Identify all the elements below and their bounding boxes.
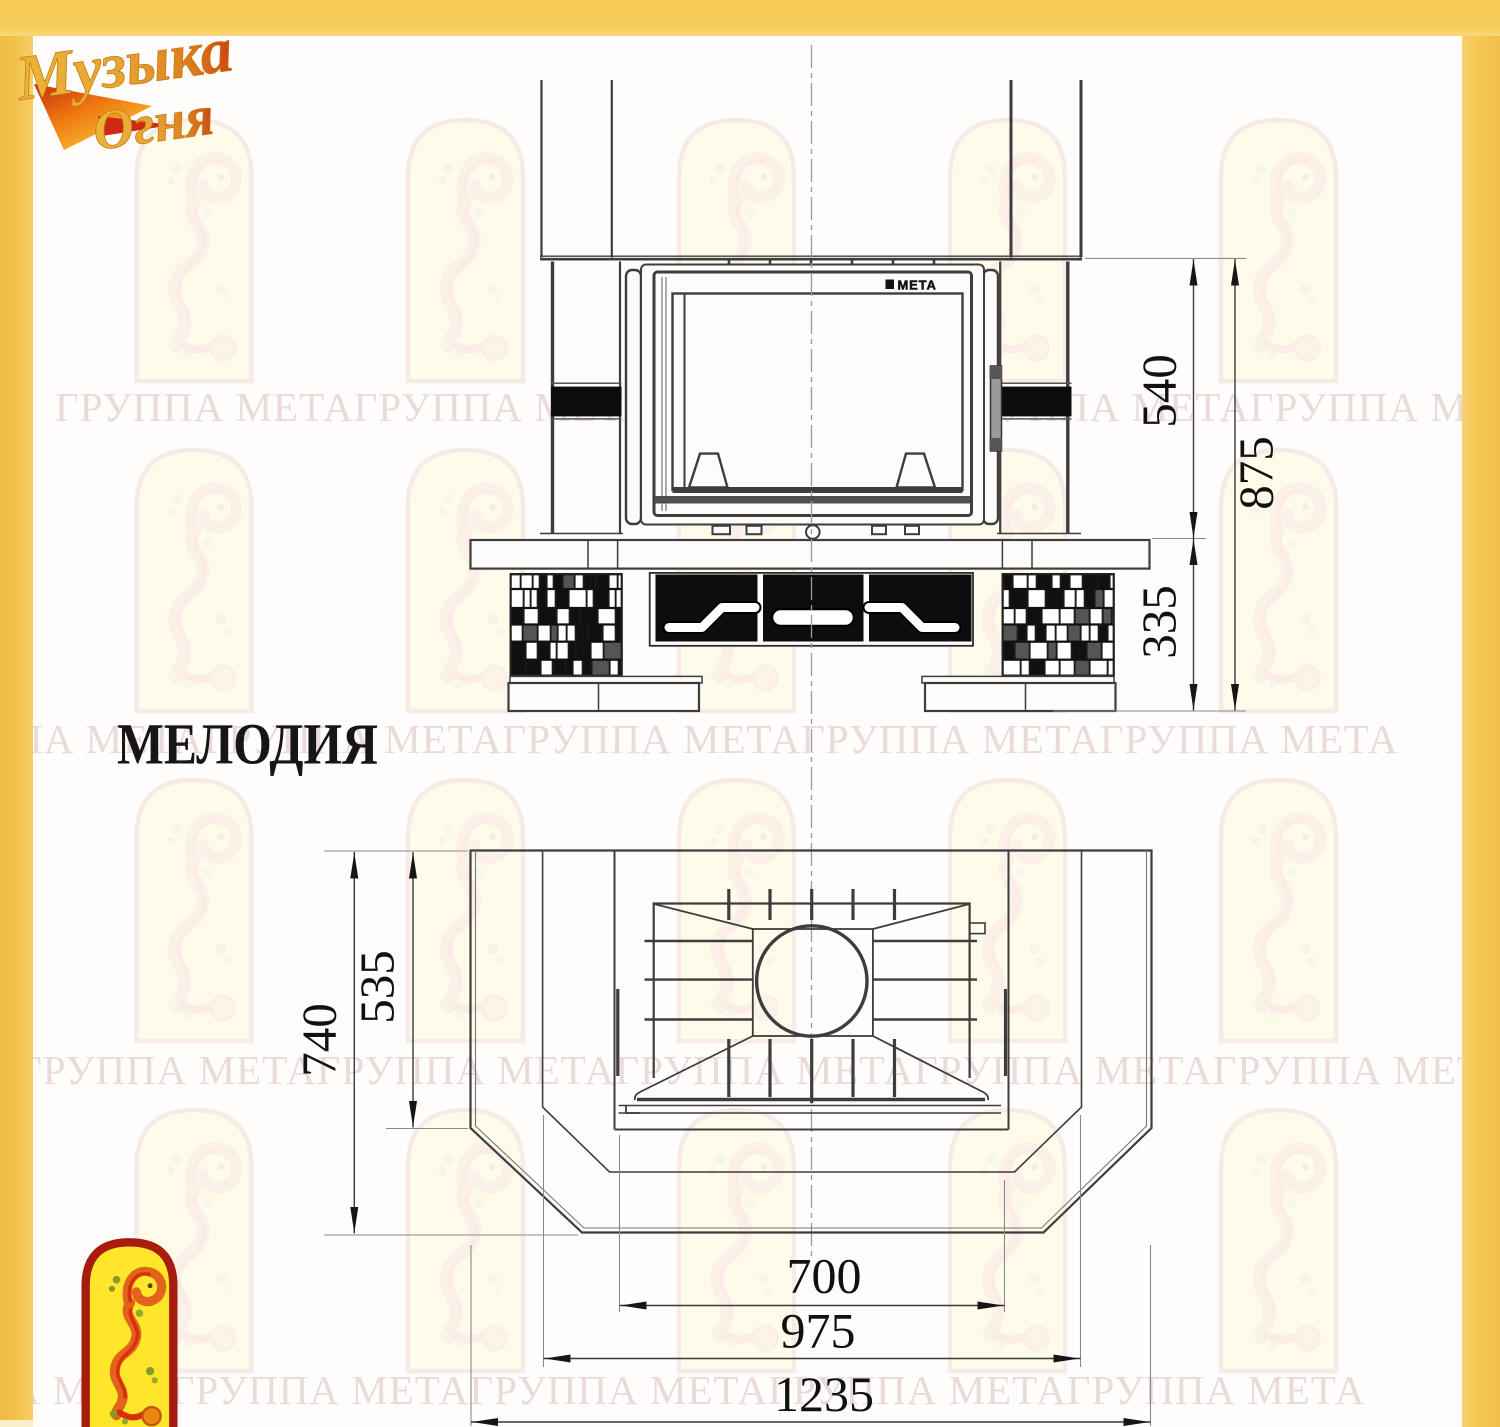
svg-text:700: 700 (787, 1248, 862, 1304)
svg-text:1235: 1235 (774, 1366, 874, 1422)
svg-text:540: 540 (1131, 354, 1186, 428)
svg-text:335: 335 (1131, 585, 1186, 659)
svg-text:ГРУППА МЕТАГРУППА МЕТАГРУППА М: ГРУППА МЕТАГРУППА МЕТАГРУППА МЕТАГРУППА … (0, 1367, 1366, 1413)
svg-text:МЕТА: МЕТА (898, 278, 937, 293)
svg-text:535: 535 (349, 950, 404, 1024)
svg-text:975: 975 (781, 1303, 856, 1359)
svg-text:ГРУППА МЕТАГРУППА МЕТАГРУППА М: ГРУППА МЕТАГРУППА МЕТАГРУППА МЕТАГРУППА … (18, 1047, 1500, 1093)
svg-text:875: 875 (1228, 436, 1283, 510)
svg-text:740: 740 (291, 1003, 346, 1077)
svg-text:МЕЛОДИЯ: МЕЛОДИЯ (117, 712, 378, 777)
